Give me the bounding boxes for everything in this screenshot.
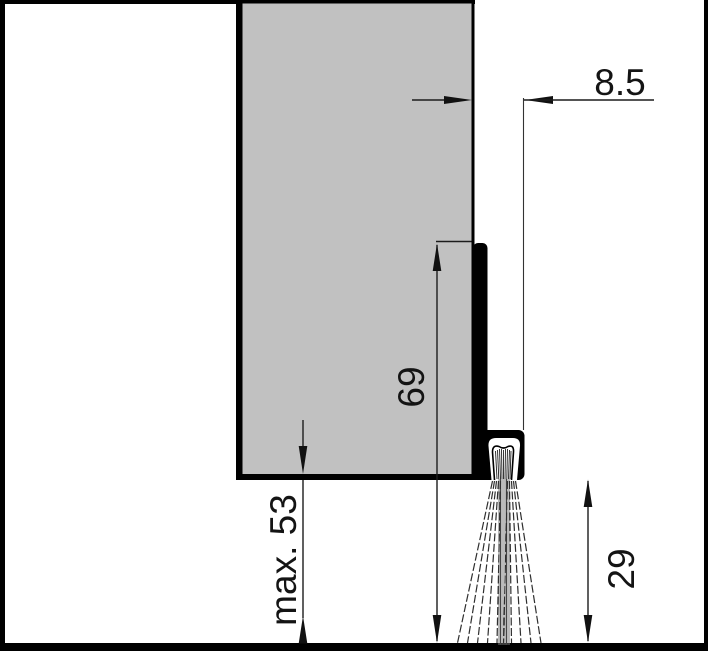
dimension-label-height: 69	[391, 366, 432, 407]
door-panel	[236, 0, 475, 480]
technical-drawing-canvas: 8.5 69 max. 53 29	[0, 0, 708, 651]
floor-line	[0, 643, 708, 651]
dimension-label-depth: 8.5	[594, 62, 645, 103]
dimension-label-brush-drop: 29	[601, 548, 642, 589]
frame-left-border	[0, 0, 5, 651]
dimension-label-max-gap: max. 53	[263, 494, 304, 626]
frame-right-border	[704, 0, 708, 651]
brush-seal-drawing: 8.5 69 max. 53 29	[0, 0, 708, 651]
